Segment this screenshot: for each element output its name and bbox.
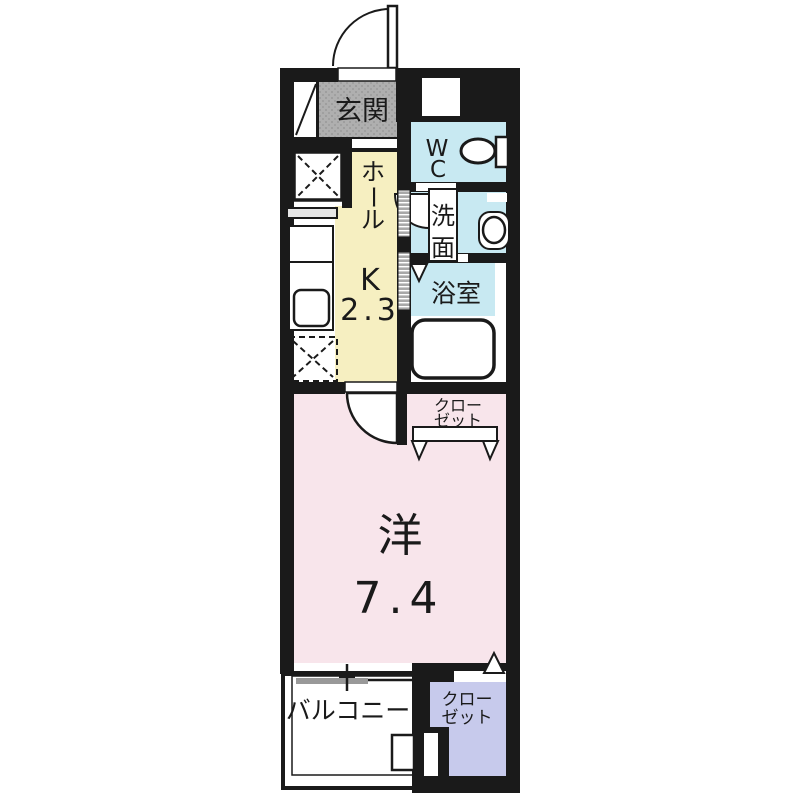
closet-bottom-floor-lower — [449, 727, 506, 776]
western-room-size-label: 7.4 — [354, 573, 445, 624]
floor-plan-page: 玄関 W C 洗 面 浴室 ホ ー ル K 2.3 クロー ゼット 洋 7.4 … — [0, 0, 800, 800]
washroom-sliding-door-icon — [398, 190, 410, 237]
kitchen-counter — [289, 226, 333, 330]
closet-bottom-label-line1: クロー — [442, 690, 493, 710]
closet-bottom-label-line2: ゼット — [442, 708, 493, 728]
water-heater-icon — [392, 735, 414, 770]
wall-left — [280, 68, 294, 674]
bathtub-icon — [412, 320, 494, 378]
balcony-label: バルコニー — [286, 696, 411, 725]
washroom-label-char1: 洗 — [431, 202, 455, 230]
washer-space-icon — [294, 152, 342, 200]
wall-closet-mid-left — [397, 394, 407, 445]
entrance-step-threshold — [352, 139, 397, 148]
washbasin-icon — [479, 212, 509, 249]
western-room-label: 洋 — [377, 509, 422, 562]
wc-label-c: C — [430, 157, 446, 183]
washroom-shelf — [487, 193, 507, 202]
wall-room-top-left — [280, 382, 345, 394]
kitchen-sink-icon — [294, 290, 329, 326]
kitchen-size-label: 2.3 — [340, 293, 400, 328]
kitchen-shelf — [287, 208, 337, 218]
bathroom-label: 浴室 — [431, 279, 481, 308]
hall-label-char1: ホ — [361, 158, 385, 186]
floor-plan: 玄関 W C 洗 面 浴室 ホ ー ル K 2.3 クロー ゼット 洋 7.4 … — [0, 0, 800, 800]
entrance-door-leaf — [388, 6, 397, 68]
washroom-label-char2: 面 — [431, 234, 455, 262]
wall-room-top-right — [397, 382, 506, 394]
entrance-threshold — [338, 68, 396, 81]
entrance-label: 玄関 — [335, 96, 389, 127]
hall-label-char3: ル — [361, 206, 385, 234]
pipe-space-slot — [424, 733, 438, 776]
room-door-threshold — [345, 382, 397, 392]
wall-ps-entrance — [316, 78, 319, 137]
closet-mid-label-line2: ゼット — [434, 411, 482, 430]
window-niche — [422, 78, 460, 116]
